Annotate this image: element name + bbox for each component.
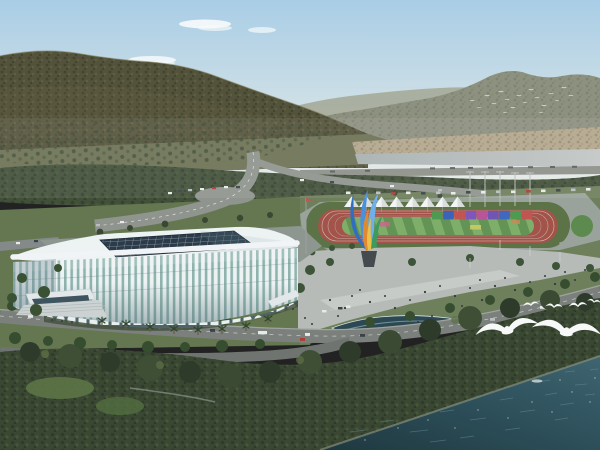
haze-overlay [0, 118, 600, 198]
billboard-wall [432, 211, 532, 220]
water-glint [532, 379, 543, 382]
rendering-image [0, 0, 600, 450]
grass-clearing [26, 377, 94, 399]
loop-lawn [571, 215, 593, 237]
